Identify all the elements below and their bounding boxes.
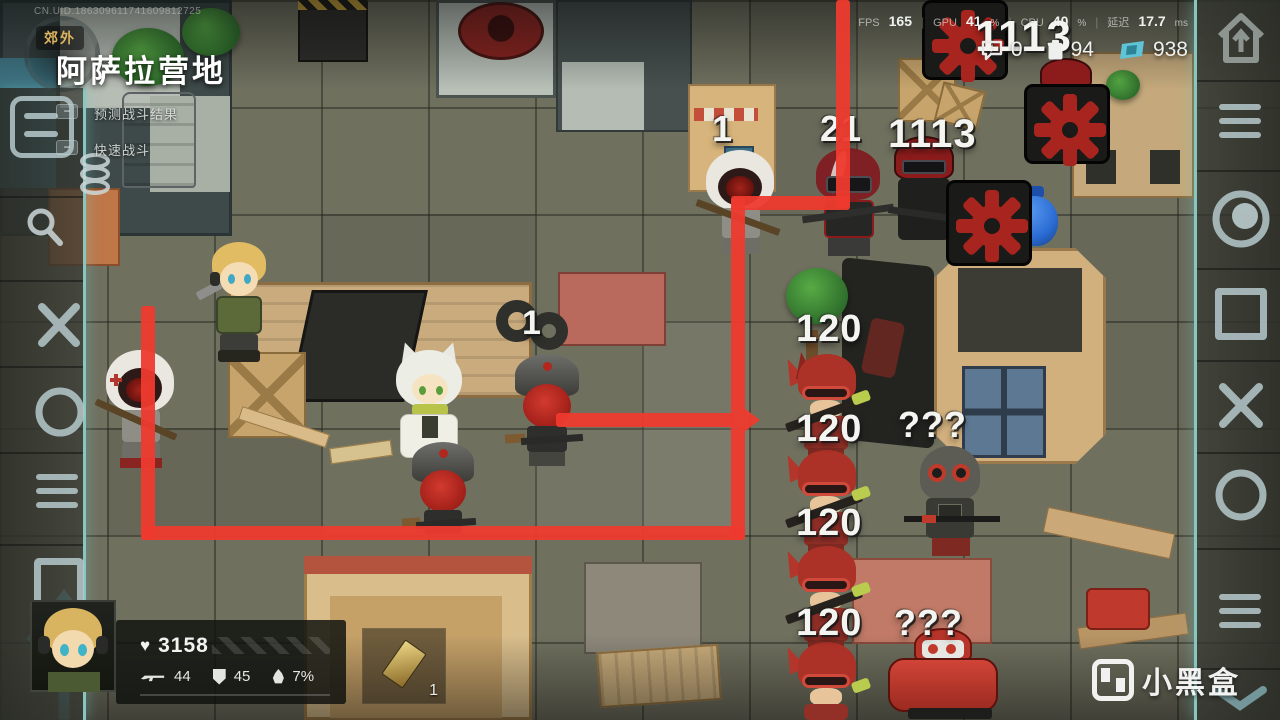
item-slot[interactable]: 1 xyxy=(362,628,446,704)
path-segment xyxy=(836,0,850,208)
headset xyxy=(210,272,220,286)
burn-flame-icon xyxy=(272,669,284,684)
enemy-helmet-soldier[interactable] xyxy=(505,352,589,470)
menu-button[interactable] xyxy=(1219,586,1261,636)
rifle-icon xyxy=(140,671,166,683)
cross-button[interactable] xyxy=(1215,378,1267,432)
enemy-sniper-goggles[interactable] xyxy=(906,446,998,566)
path-arrowhead xyxy=(744,408,760,432)
legs xyxy=(932,538,970,556)
cash-currency-value: 938 xyxy=(1153,38,1188,62)
burn-value: 7% xyxy=(292,668,314,685)
inner-court xyxy=(958,268,1082,352)
brick-edge xyxy=(304,556,532,574)
goggle xyxy=(928,464,946,482)
window xyxy=(1150,150,1180,184)
home-button[interactable] xyxy=(1214,8,1268,68)
quick-battle-label[interactable]: 快速战斗 xyxy=(94,140,150,159)
search-icon xyxy=(24,206,64,248)
record-circle-icon xyxy=(1211,188,1271,250)
gold-item xyxy=(381,639,426,688)
item-count: 1 xyxy=(429,682,438,700)
portrait-face xyxy=(52,630,94,668)
enemy-count-label: 120 xyxy=(796,602,862,645)
fps-label: FPS xyxy=(858,17,879,29)
enemy-count-label: 1 xyxy=(712,108,733,150)
portrait-vest xyxy=(48,672,100,692)
sniper-rifle xyxy=(904,516,1000,522)
defense-value: 45 xyxy=(234,668,251,685)
path-segment xyxy=(731,198,745,540)
battery-card-icon xyxy=(1047,39,1064,61)
game-screen: 1113 1113 1 21 1 120 120 120 120 ??? ??? xyxy=(0,0,1280,720)
home-icon xyxy=(1214,8,1268,68)
legs xyxy=(828,238,870,256)
map-title: 阿萨拉营地 xyxy=(56,46,226,91)
goggle xyxy=(952,464,970,482)
chat-currency-value: 0 xyxy=(1011,38,1023,62)
hp-bar xyxy=(212,637,330,654)
quick-battle-toggle[interactable]: − xyxy=(56,140,78,155)
cross-button[interactable] xyxy=(34,299,84,351)
player-stats-panel: ♥ 3158 44 45 7% xyxy=(116,620,346,704)
headphone xyxy=(38,636,50,654)
gpu-label: GPU xyxy=(933,17,957,29)
enemy-count-label: 120 xyxy=(796,502,862,545)
boots xyxy=(218,350,260,362)
unknown-count-label: ??? xyxy=(898,404,967,446)
enemy-count-label: 120 xyxy=(796,308,862,351)
defense-shield-icon xyxy=(213,669,226,685)
path-segment xyxy=(141,526,745,540)
red-toolbox xyxy=(1086,588,1150,630)
path-segment xyxy=(141,306,155,540)
menu-button[interactable] xyxy=(36,466,78,516)
face xyxy=(420,470,466,512)
enemy-count-label: 120 xyxy=(796,408,862,451)
heybox-watermark: 小黑盒 xyxy=(1092,658,1241,702)
visor xyxy=(902,160,946,174)
cpu-value: 40 xyxy=(1053,13,1069,29)
square-button[interactable] xyxy=(1215,288,1267,340)
cross-icon xyxy=(34,299,84,351)
latency-label: 延迟 xyxy=(1107,14,1129,30)
watermark-text: 小黑盒 xyxy=(1142,658,1241,702)
hp-value: 3158 xyxy=(158,634,209,658)
objective-count-label: 1 xyxy=(522,304,542,343)
goggles xyxy=(802,578,850,592)
hp-heart-icon: ♥ xyxy=(140,636,150,656)
performance-bar: FPS165 | GPU41% | CPU40% | 延迟17.7ms xyxy=(858,13,1188,30)
heybox-logo-icon xyxy=(1092,659,1134,701)
circle-button[interactable] xyxy=(34,386,86,438)
attack-value: 44 xyxy=(174,668,191,685)
latency-value: 17.7 xyxy=(1138,13,1165,29)
ally-blonde-soldier[interactable] xyxy=(196,242,282,364)
chat-bolt-icon xyxy=(980,39,1004,61)
record-button[interactable] xyxy=(1211,188,1271,250)
energy-currency-value: 94 xyxy=(1071,38,1094,62)
predict-battle-label[interactable]: 预测战斗结果 xyxy=(94,104,178,123)
mech-torso xyxy=(888,658,998,712)
red-cross xyxy=(114,374,118,386)
search-button[interactable] xyxy=(24,206,64,248)
circle-icon xyxy=(1214,468,1268,522)
body xyxy=(804,704,848,720)
enemy-count-label: 1113 xyxy=(888,112,977,157)
fps-value: 165 xyxy=(889,13,912,29)
right-control-strip xyxy=(1194,0,1280,720)
face xyxy=(220,262,258,296)
currency-bar: 0 94 938 xyxy=(980,38,1188,62)
path-segment xyxy=(556,413,734,427)
vest xyxy=(216,296,262,334)
path-segment xyxy=(731,196,850,210)
gpu-value: 41 xyxy=(966,13,982,29)
player-portrait[interactable] xyxy=(30,600,116,692)
legs xyxy=(529,452,565,466)
goggles xyxy=(802,386,850,400)
mech-gun xyxy=(908,708,992,719)
menu-button[interactable] xyxy=(1219,96,1261,146)
headphone xyxy=(96,636,108,654)
goggles xyxy=(802,482,850,496)
enemy-rpg-hood[interactable] xyxy=(782,640,870,720)
unknown-count-label: ??? xyxy=(894,602,963,644)
circle-icon xyxy=(34,386,86,438)
window-grid xyxy=(962,366,1046,458)
cpu-label: CPU xyxy=(1021,17,1044,29)
cross-icon xyxy=(1215,378,1267,432)
circle-button[interactable] xyxy=(1214,468,1268,522)
predict-battle-toggle[interactable]: − xyxy=(56,104,78,119)
goggles xyxy=(802,674,850,688)
cash-icon xyxy=(1118,40,1146,60)
